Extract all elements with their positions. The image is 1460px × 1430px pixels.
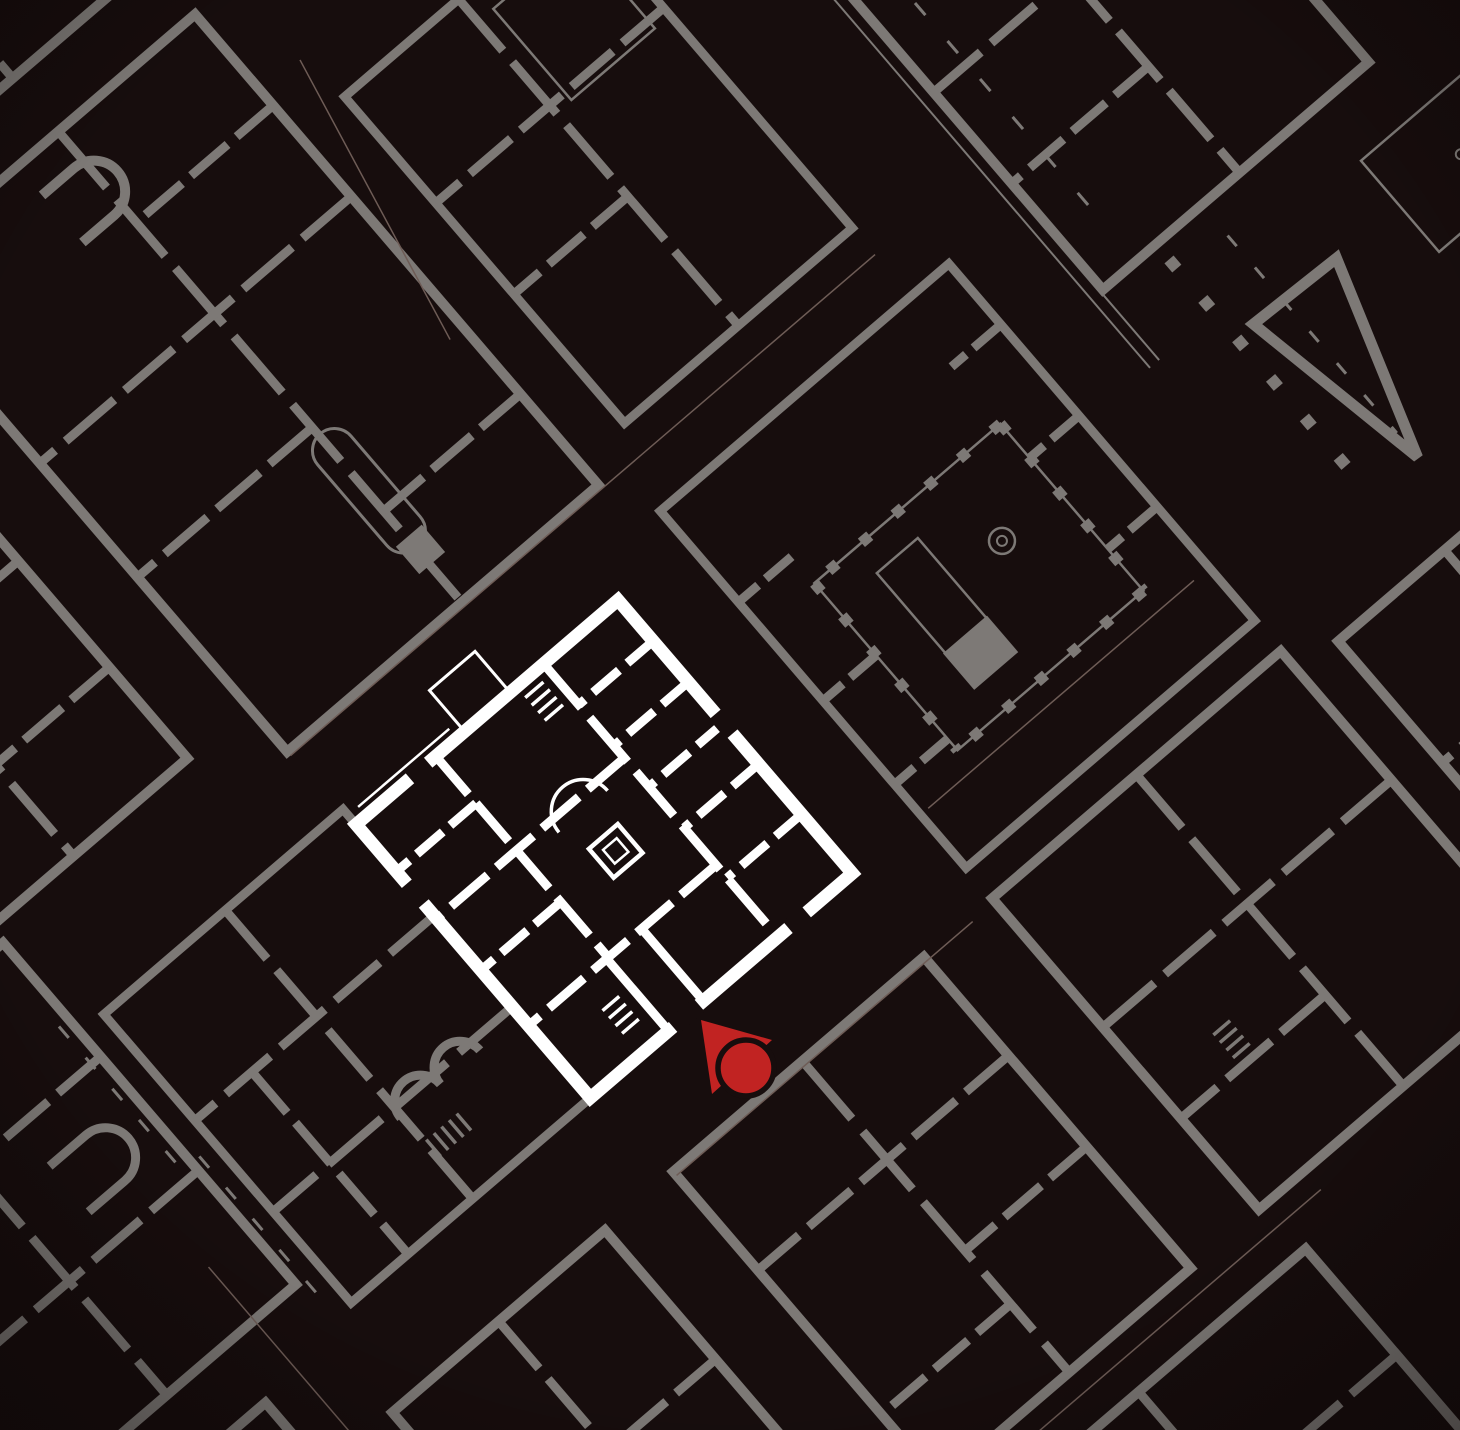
- map-viewport[interactable]: [0, 0, 1460, 1430]
- vignette-overlay: [0, 0, 1460, 1430]
- site-map: [0, 0, 1460, 1430]
